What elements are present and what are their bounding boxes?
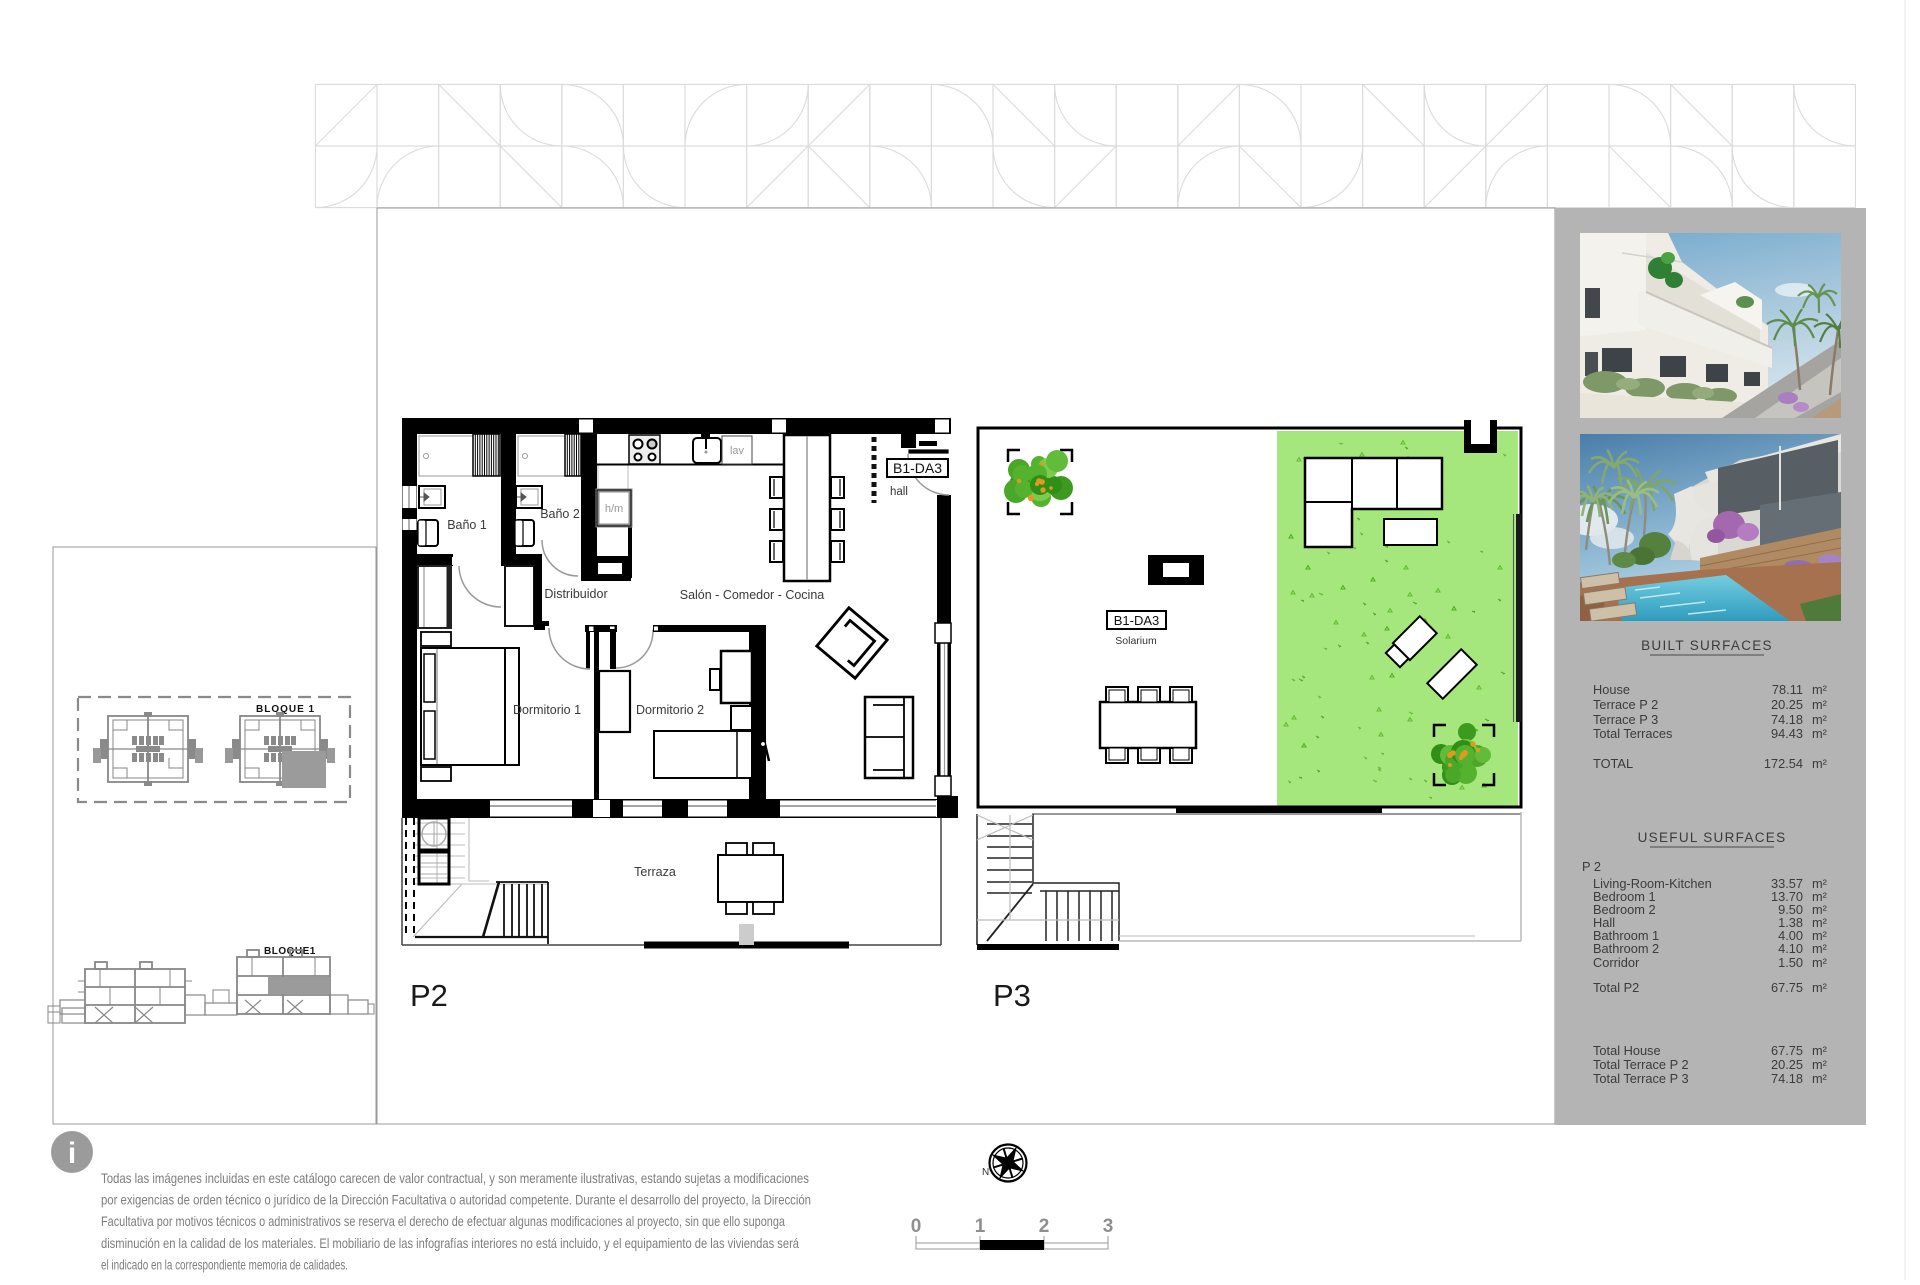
svg-text:20.25: 20.25 bbox=[1771, 697, 1803, 712]
svg-text:m²: m² bbox=[1812, 697, 1828, 712]
svg-text:1: 1 bbox=[975, 1216, 986, 1237]
svg-text:m²: m² bbox=[1812, 955, 1828, 970]
svg-text:94.43: 94.43 bbox=[1771, 726, 1803, 741]
svg-text:hall: hall bbox=[890, 486, 908, 498]
svg-text:Terrace P 3: Terrace P 3 bbox=[1593, 712, 1658, 727]
svg-text:Bathroom 2: Bathroom 2 bbox=[1593, 941, 1659, 956]
svg-text:Facultativa por motivos técnic: Facultativa por motivos técnicos o admin… bbox=[101, 1213, 785, 1229]
svg-text:lav: lav bbox=[730, 445, 745, 457]
svg-text:67.75: 67.75 bbox=[1771, 1043, 1803, 1058]
svg-text:74.18: 74.18 bbox=[1771, 712, 1803, 727]
svg-text:67.75: 67.75 bbox=[1771, 980, 1803, 995]
svg-text:2: 2 bbox=[1039, 1216, 1050, 1237]
svg-text:B1-DA3: B1-DA3 bbox=[1114, 613, 1160, 628]
svg-text:TOTAL: TOTAL bbox=[1593, 756, 1633, 771]
svg-text:Distribuidor: Distribuidor bbox=[544, 587, 607, 601]
svg-text:Dormitorio 2: Dormitorio 2 bbox=[636, 703, 704, 717]
svg-text:0: 0 bbox=[911, 1216, 922, 1237]
svg-text:BUILT SURFACES: BUILT SURFACES bbox=[1641, 638, 1773, 653]
svg-text:Total Terraces: Total Terraces bbox=[1593, 726, 1672, 741]
svg-text:Total House: Total House bbox=[1593, 1043, 1661, 1058]
svg-text:el indicado en la correspondie: el indicado en la correspondiente memori… bbox=[101, 1256, 348, 1272]
svg-text:172.54: 172.54 bbox=[1764, 756, 1803, 771]
svg-text:Dormitorio 1: Dormitorio 1 bbox=[513, 703, 581, 717]
svg-text:m²: m² bbox=[1812, 1057, 1828, 1072]
svg-text:Baño 2: Baño 2 bbox=[540, 507, 580, 521]
svg-text:h/m: h/m bbox=[605, 503, 623, 515]
svg-text:Solarium: Solarium bbox=[1115, 635, 1157, 647]
svg-text:BLOQUE 1: BLOQUE 1 bbox=[256, 704, 315, 715]
svg-text:20.25: 20.25 bbox=[1771, 1057, 1803, 1072]
svg-text:Total Terrace P 2: Total Terrace P 2 bbox=[1593, 1057, 1689, 1072]
svg-text:4.10: 4.10 bbox=[1778, 941, 1803, 956]
svg-text:Terraza: Terraza bbox=[634, 865, 676, 879]
svg-text:78.11: 78.11 bbox=[1772, 682, 1803, 697]
svg-text:por exigencias de orden técni: por exigencias de orden técnico o jurídi… bbox=[101, 1192, 811, 1208]
svg-text:B1-DA3: B1-DA3 bbox=[893, 460, 942, 476]
svg-text:N: N bbox=[982, 1167, 989, 1178]
svg-text:m²: m² bbox=[1812, 1043, 1828, 1058]
svg-text:i: i bbox=[68, 1137, 76, 1170]
svg-text:1.50: 1.50 bbox=[1778, 955, 1803, 970]
svg-text:House: House bbox=[1593, 682, 1630, 697]
svg-text:Baño 1: Baño 1 bbox=[447, 518, 487, 532]
svg-text:m²: m² bbox=[1812, 1071, 1828, 1086]
svg-text:disminución en la calidad de: disminución en la calidad de los materia… bbox=[101, 1235, 799, 1251]
svg-text:USEFUL SURFACES: USEFUL SURFACES bbox=[1638, 830, 1787, 845]
svg-text:3: 3 bbox=[1103, 1216, 1114, 1237]
svg-text:Salón - Comedor - Cocina: Salón - Comedor - Cocina bbox=[680, 588, 825, 602]
svg-text:Total P2: Total P2 bbox=[1593, 980, 1639, 995]
svg-text:Terrace P 2: Terrace P 2 bbox=[1593, 697, 1658, 712]
svg-text:P3: P3 bbox=[993, 978, 1031, 1013]
svg-text:Total Terrace P 3: Total Terrace P 3 bbox=[1593, 1071, 1689, 1086]
svg-text:m²: m² bbox=[1812, 941, 1828, 956]
svg-text:P2: P2 bbox=[410, 978, 448, 1013]
svg-text:74.18: 74.18 bbox=[1771, 1071, 1803, 1086]
svg-text:P 2: P 2 bbox=[1582, 859, 1601, 874]
svg-text:Corridor: Corridor bbox=[1593, 955, 1640, 970]
svg-text:m²: m² bbox=[1812, 682, 1828, 697]
svg-text:m²: m² bbox=[1812, 712, 1828, 727]
svg-text:m²: m² bbox=[1812, 726, 1828, 741]
svg-text:m²: m² bbox=[1812, 756, 1828, 771]
svg-text:Todas las imágenes incluidas e: Todas las imágenes incluidas en este cat… bbox=[101, 1170, 809, 1186]
svg-text:m²: m² bbox=[1812, 980, 1828, 995]
